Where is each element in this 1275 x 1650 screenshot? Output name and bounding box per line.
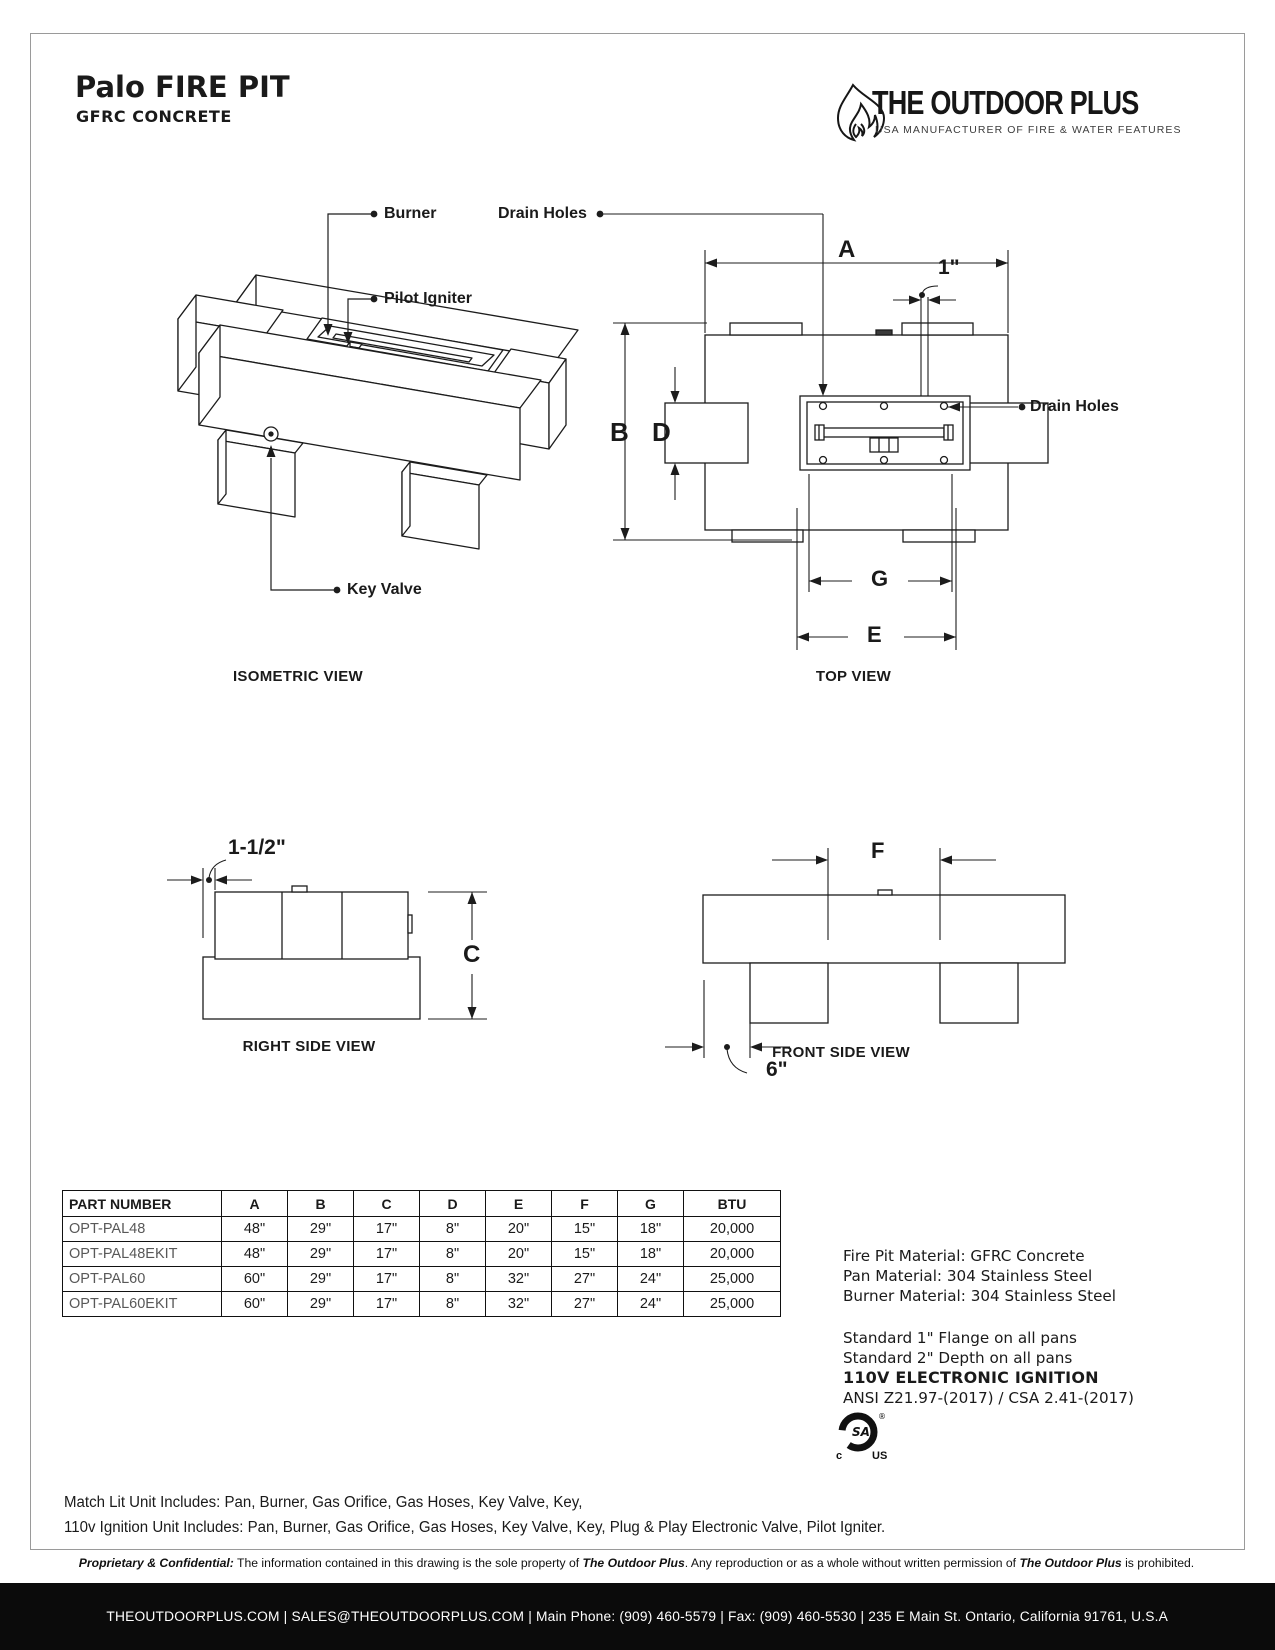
- front-top-nub: [878, 890, 892, 895]
- view-label-right: RIGHT SIDE VIEW: [230, 1038, 388, 1055]
- table-row: OPT-PAL6060"29"17"8"32"27"24"25,000: [63, 1267, 781, 1292]
- table-cell: 18": [618, 1242, 684, 1267]
- table-header-cell: D: [420, 1191, 486, 1217]
- top-leg-tab: [902, 323, 973, 335]
- table-row: OPT-PAL48EKIT48"29"17"8"20"15"18"20,000: [63, 1242, 781, 1267]
- table-cell: 48": [222, 1242, 288, 1267]
- proprietary-label: Proprietary & Confidential:: [79, 1556, 234, 1570]
- table-cell: 20": [486, 1242, 552, 1267]
- table-cell: 8": [420, 1267, 486, 1292]
- spec-material-burner: Burner Material: 304 Stainless Steel: [843, 1286, 1116, 1306]
- table-cell: 29": [288, 1242, 354, 1267]
- table-cell: 48": [222, 1217, 288, 1242]
- callout-pilot-igniter: Pilot Igniter: [384, 290, 472, 308]
- drain-hole: [820, 457, 827, 464]
- right-base-block: [203, 957, 420, 1019]
- dim-label-1-5in: 1-1/2": [228, 836, 286, 860]
- right-side-tab: [408, 915, 412, 933]
- dim-label-d: D: [652, 417, 671, 448]
- page-title: Palo FIRE PIT: [75, 70, 290, 104]
- dim-label-f: F: [871, 838, 884, 864]
- right-view-drawing: [203, 886, 420, 1019]
- dim-label-a: A: [838, 236, 855, 264]
- spec-sheet-page: { "header": { "title": "Palo FIRE PIT", …: [0, 0, 1275, 1650]
- dim-label-e: E: [867, 622, 882, 648]
- iso-leg2-end: [402, 462, 410, 536]
- callout-burner: Burner: [384, 205, 436, 223]
- front-leg: [750, 963, 828, 1023]
- front-slab: [703, 895, 1065, 963]
- view-label-front: FRONT SIDE VIEW: [760, 1044, 922, 1061]
- table-cell: 24": [618, 1267, 684, 1292]
- table-header-cell: F: [552, 1191, 618, 1217]
- spec-table: PART NUMBERABCDEFGBTU OPT-PAL4848"29"17"…: [62, 1190, 781, 1317]
- table-row: OPT-PAL4848"29"17"8"20"15"18"20,000: [63, 1217, 781, 1242]
- table-cell: OPT-PAL48: [63, 1217, 222, 1242]
- csa-c-label: c: [836, 1450, 842, 1462]
- iso-leg1-front: [218, 440, 295, 517]
- proprietary-brand: The Outdoor Plus: [583, 1556, 685, 1570]
- table-cell: 20,000: [684, 1217, 781, 1242]
- iso-leg2-front: [402, 472, 479, 549]
- table-header-cell: C: [354, 1191, 420, 1217]
- csa-us-label: US: [872, 1450, 887, 1462]
- pilot-box: [870, 438, 898, 452]
- callout-key-valve: Key Valve: [347, 581, 422, 599]
- callout-drain-holes-right: Drain Holes: [1030, 398, 1119, 416]
- table-header-cell: BTU: [684, 1191, 781, 1217]
- table-header-cell: G: [618, 1191, 684, 1217]
- isometric-drawing: [178, 275, 578, 549]
- dim-label-6in: 6": [766, 1058, 788, 1082]
- dim-label-b: B: [610, 417, 629, 448]
- table-cell: 17": [354, 1217, 420, 1242]
- table-cell: 20,000: [684, 1242, 781, 1267]
- table-cell: 60": [222, 1292, 288, 1317]
- table-cell: 8": [420, 1217, 486, 1242]
- table-cell: 27": [552, 1267, 618, 1292]
- table-cell: OPT-PAL60: [63, 1267, 222, 1292]
- proprietary-text: . Any reproduction or as a whole without…: [685, 1556, 1020, 1570]
- drain-hole: [820, 403, 827, 410]
- table-header-row: PART NUMBERABCDEFGBTU: [63, 1191, 781, 1217]
- dim-label-1in: 1": [938, 256, 960, 280]
- dim-label-g: G: [871, 566, 888, 592]
- spec-standard-depth: Standard 2" Depth on all pans: [843, 1348, 1072, 1368]
- drain-hole: [881, 403, 888, 410]
- csa-mark-text: SA: [852, 1425, 870, 1439]
- table-cell: 17": [354, 1292, 420, 1317]
- drain-hole: [881, 457, 888, 464]
- drain-hole: [941, 457, 948, 464]
- table-cell: 17": [354, 1267, 420, 1292]
- table-cell: 24": [618, 1292, 684, 1317]
- table-cell: 18": [618, 1217, 684, 1242]
- footer-bar: THEOUTDOORPLUS.COM | SALES@THEOUTDOORPLU…: [0, 1583, 1275, 1650]
- iso-leg1-end: [218, 430, 226, 504]
- top-leg-tab: [903, 530, 975, 542]
- table-cell: 29": [288, 1292, 354, 1317]
- front-leg: [940, 963, 1018, 1023]
- note-110v: 110v Ignition Unit Includes: Pan, Burner…: [64, 1519, 885, 1537]
- page-subtitle: GFRC CONCRETE: [76, 107, 232, 126]
- top-left-wing: [665, 403, 748, 463]
- spec-table-body: OPT-PAL4848"29"17"8"20"15"18"20,000OPT-P…: [63, 1217, 781, 1317]
- table-cell: 29": [288, 1217, 354, 1242]
- table-cell: OPT-PAL48EKIT: [63, 1242, 222, 1267]
- spec-standard-flange: Standard 1" Flange on all pans: [843, 1328, 1077, 1348]
- table-header-cell: A: [222, 1191, 288, 1217]
- spec-ignition: 110V ELECTRONIC IGNITION: [843, 1368, 1099, 1388]
- table-cell: 60": [222, 1267, 288, 1292]
- brand-tagline: USA MANUFACTURER OF FIRE & WATER FEATURE…: [875, 124, 1182, 136]
- spec-table-head: PART NUMBERABCDEFGBTU: [63, 1191, 781, 1217]
- note-match-lit: Match Lit Unit Includes: Pan, Burner, Ga…: [64, 1494, 582, 1512]
- csa-registered-symbol: ®: [878, 1412, 886, 1421]
- table-cell: 32": [486, 1267, 552, 1292]
- drain-hole: [941, 403, 948, 410]
- table-cell: 15": [552, 1242, 618, 1267]
- table-cell: 25,000: [684, 1267, 781, 1292]
- right-top-nub: [292, 886, 307, 892]
- spec-material-firepit: Fire Pit Material: GFRC Concrete: [843, 1246, 1085, 1266]
- right-upper-band: [215, 892, 408, 959]
- table-cell: 20": [486, 1217, 552, 1242]
- table-cell: 29": [288, 1267, 354, 1292]
- table-cell: OPT-PAL60EKIT: [63, 1292, 222, 1317]
- table-cell: 32": [486, 1292, 552, 1317]
- key-valve-knob-center: [269, 432, 273, 436]
- table-cell: 17": [354, 1242, 420, 1267]
- top-leg-tab: [730, 323, 802, 335]
- proprietary-brand: The Outdoor Plus: [1019, 1556, 1121, 1570]
- footer-contact: THEOUTDOORPLUS.COM | SALES@THEOUTDOORPLU…: [107, 1609, 1169, 1625]
- proprietary-text: The information contained in this drawin…: [234, 1556, 583, 1570]
- view-label-isometric: ISOMETRIC VIEW: [222, 668, 374, 685]
- table-cell: 8": [420, 1292, 486, 1317]
- table-cell: 15": [552, 1217, 618, 1242]
- table-row: OPT-PAL60EKIT60"29"17"8"32"27"24"25,000: [63, 1292, 781, 1317]
- front-view-drawing: [703, 890, 1065, 1023]
- table-cell: 25,000: [684, 1292, 781, 1317]
- proprietary-text: is prohibited.: [1122, 1556, 1195, 1570]
- view-label-top: TOP VIEW: [806, 668, 901, 685]
- brand-name: THE OUTDOOR PLUS: [872, 84, 1139, 122]
- callout-drain-holes-top: Drain Holes: [498, 205, 587, 223]
- proprietary-notice: Proprietary & Confidential: The informat…: [30, 1556, 1243, 1570]
- burner-tube: [823, 428, 944, 437]
- table-cell: 8": [420, 1242, 486, 1267]
- table-cell: 27": [552, 1292, 618, 1317]
- table-header-cell: E: [486, 1191, 552, 1217]
- spec-certification: ANSI Z21.97-(2017) / CSA 2.41-(2017): [843, 1388, 1134, 1408]
- dim-label-c: C: [463, 941, 480, 969]
- top-view-drawing: [665, 323, 1048, 542]
- table-header-cell: PART NUMBER: [63, 1191, 222, 1217]
- top-center-nub: [876, 330, 892, 335]
- table-header-cell: B: [288, 1191, 354, 1217]
- spec-material-pan: Pan Material: 304 Stainless Steel: [843, 1266, 1092, 1286]
